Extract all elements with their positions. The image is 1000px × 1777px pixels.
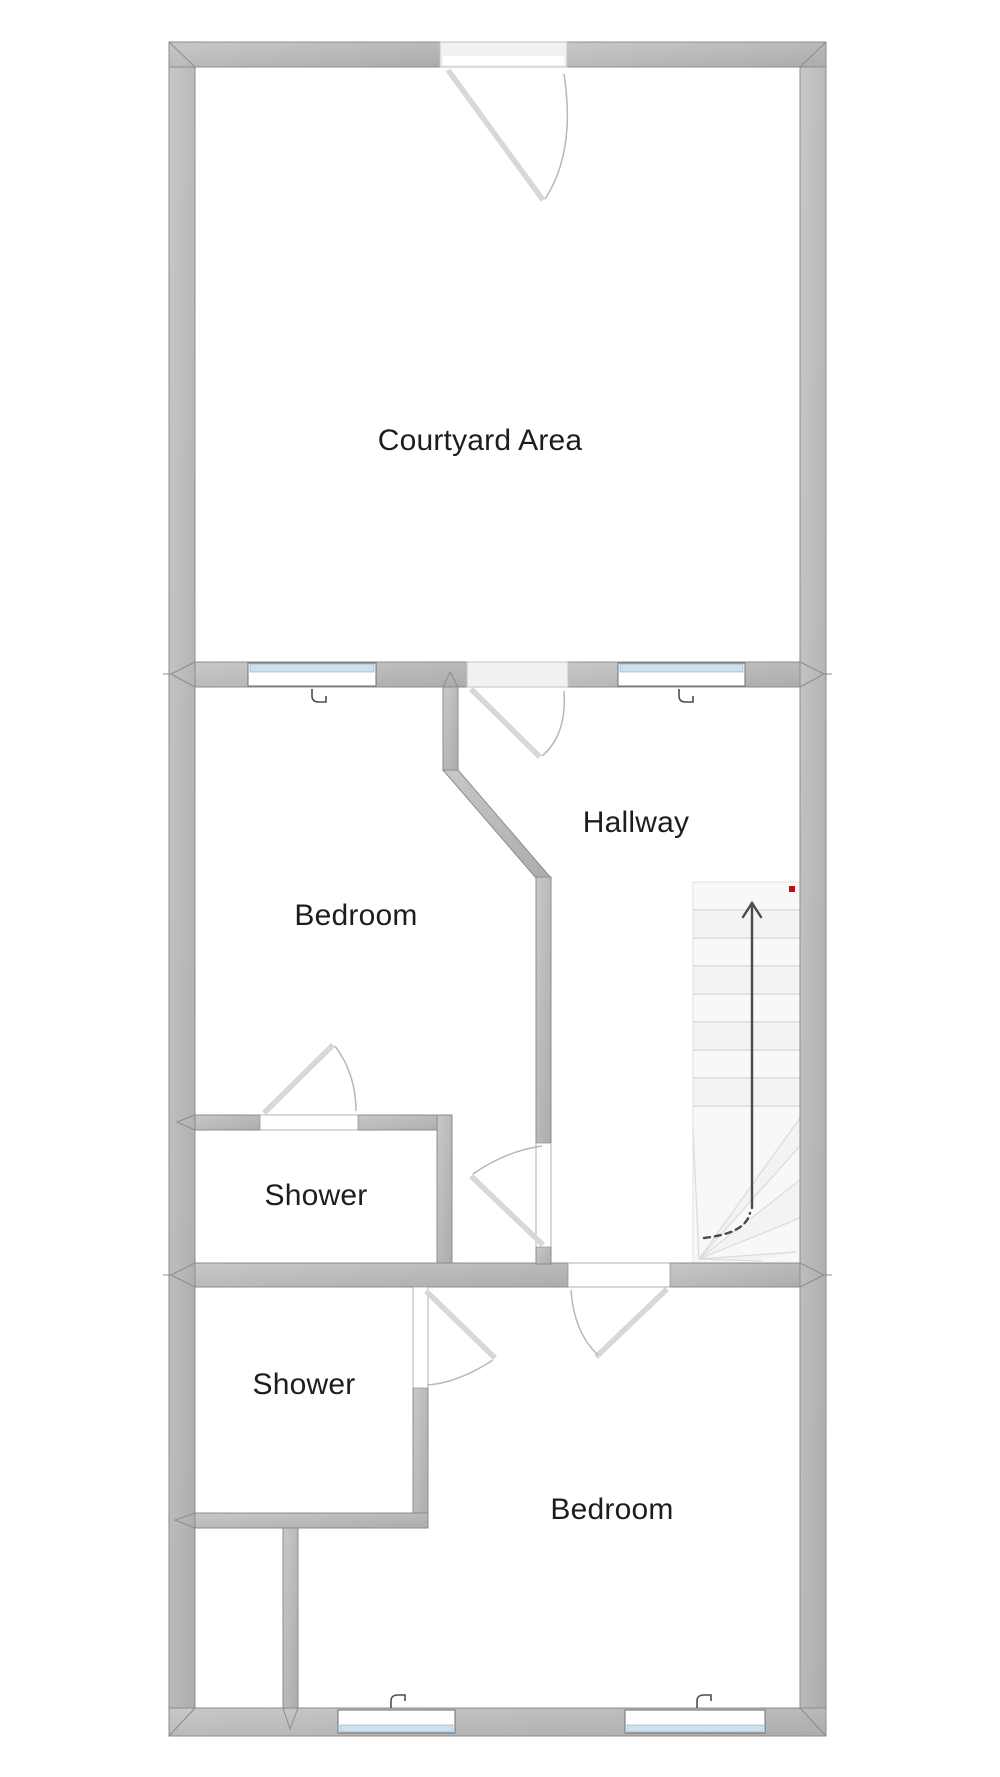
window-bedroom-upper xyxy=(248,663,376,702)
window-bedroom-lower-left xyxy=(338,1695,455,1733)
band-separator-wall-left xyxy=(195,1263,568,1287)
floor-plan: Courtyard Area Bedroom Hallway Shower Sh… xyxy=(0,0,1000,1777)
window-latch-icon xyxy=(391,1695,405,1708)
floor-plan-drawing xyxy=(0,0,1000,1777)
exterior-wall-top-right xyxy=(567,42,826,67)
door-shower-lower xyxy=(413,1287,495,1388)
door-hallway-from-courtyard xyxy=(467,662,568,757)
room-label-bedroom-upper: Bedroom xyxy=(294,899,417,933)
room-label-shower-lower: Shower xyxy=(253,1368,356,1402)
room-label-shower-upper: Shower xyxy=(265,1179,368,1213)
door-shower-upper xyxy=(260,1045,358,1130)
room-label-courtyard: Courtyard Area xyxy=(378,424,583,458)
window-latch-icon xyxy=(312,689,326,702)
exterior-wall-left xyxy=(169,42,195,1736)
door-hallway-to-bedroom-passage xyxy=(471,1143,551,1247)
lower-shower-walls xyxy=(195,1388,428,1528)
exterior-wall-right xyxy=(800,42,826,1736)
exterior-wall-top-left xyxy=(169,42,440,67)
window-latch-icon xyxy=(679,689,693,702)
staircase xyxy=(693,882,800,1263)
room-label-hallway: Hallway xyxy=(583,806,689,840)
stairs-red-marker xyxy=(789,886,795,892)
window-hallway xyxy=(618,663,745,702)
window-latch-icon xyxy=(697,1695,711,1708)
nook-wall xyxy=(283,1528,298,1708)
door-bedroom-lower xyxy=(568,1263,670,1357)
band-separator-wall-right xyxy=(670,1263,800,1287)
window-bedroom-lower-right xyxy=(625,1695,765,1733)
room-label-bedroom-lower: Bedroom xyxy=(550,1493,673,1527)
door-courtyard-entry xyxy=(440,42,567,200)
bedroom-hallway-divider-wall xyxy=(443,687,551,1264)
